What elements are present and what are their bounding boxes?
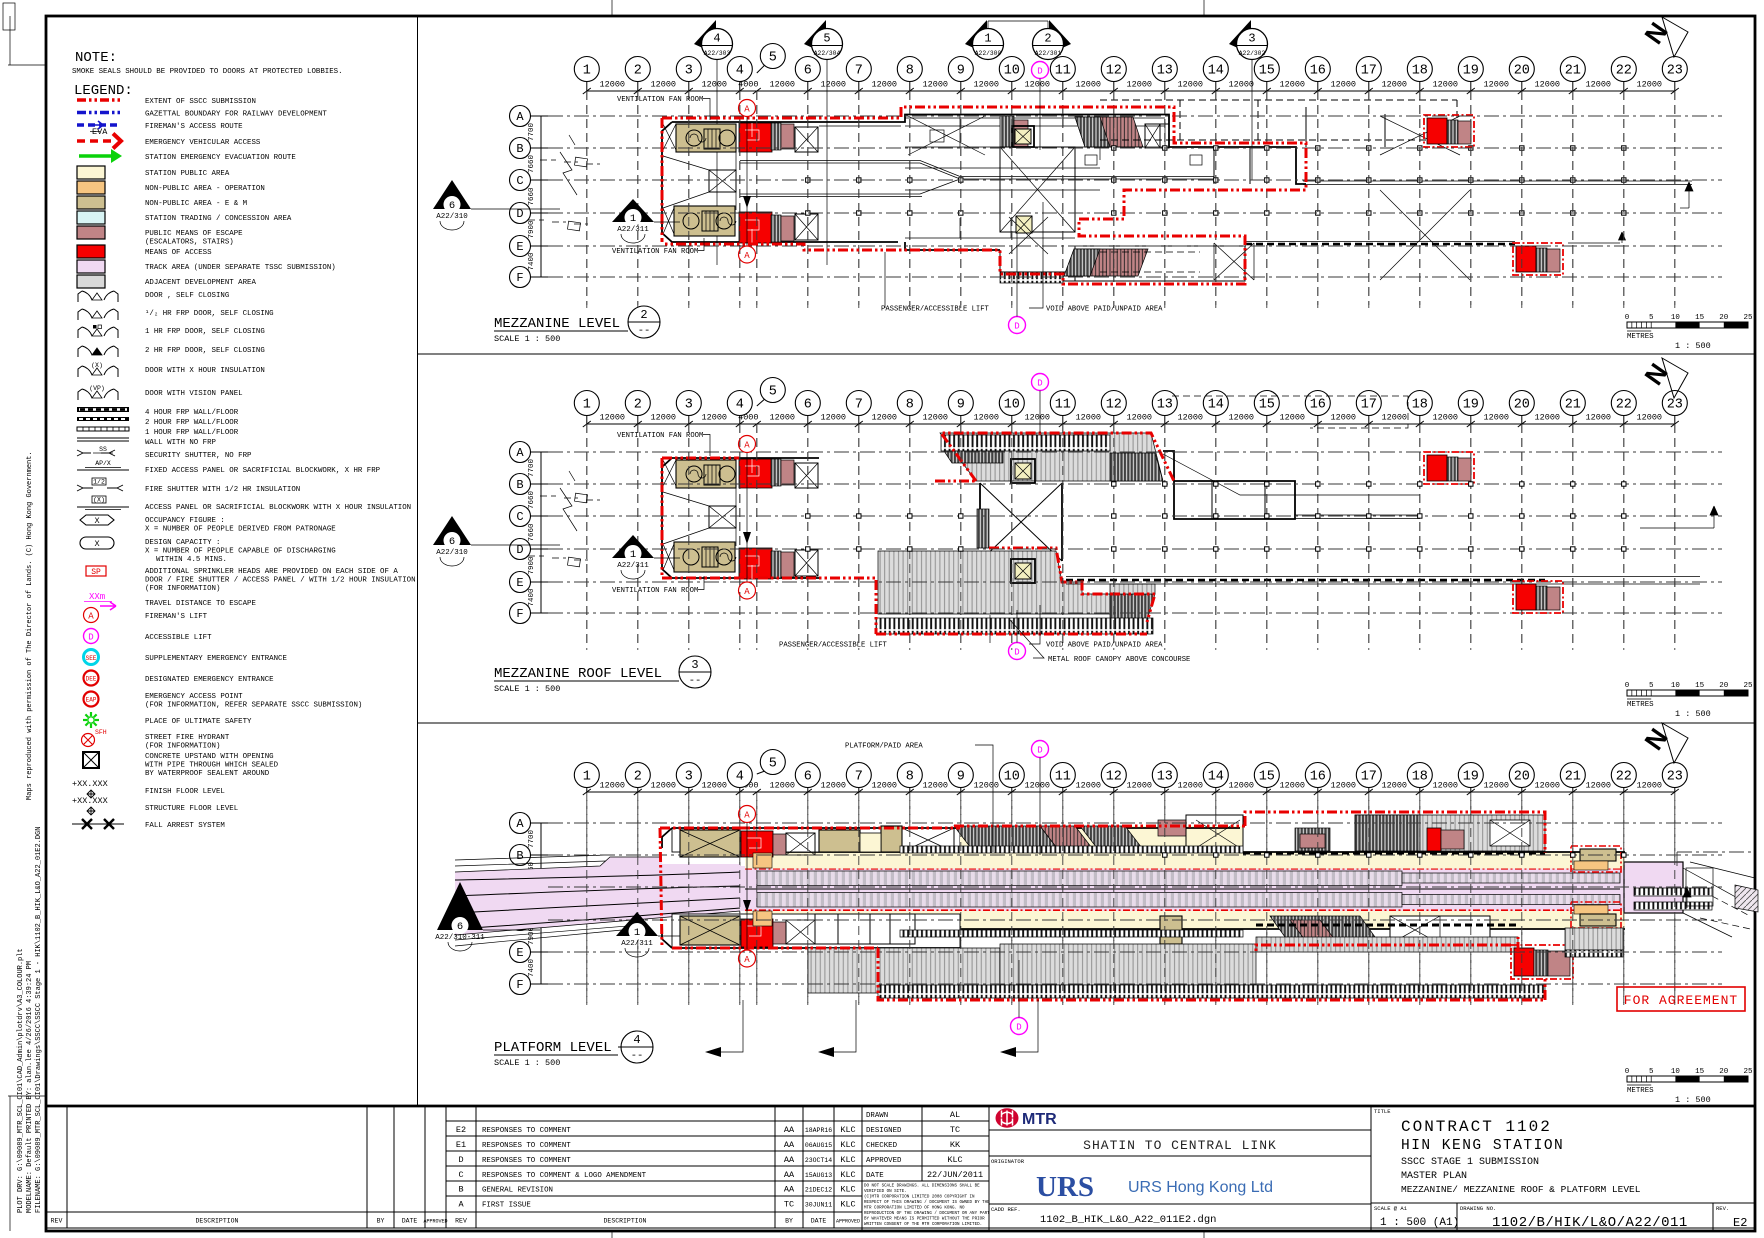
svg-text:15: 15 xyxy=(1695,1068,1705,1076)
svg-text:APPROVED: APPROVED xyxy=(866,1157,902,1165)
svg-text:DEE: DEE xyxy=(86,676,97,683)
svg-text:URS Hong Kong Ltd: URS Hong Kong Ltd xyxy=(1128,1179,1273,1196)
svg-text:12000: 12000 xyxy=(872,781,898,791)
svg-text:KLC: KLC xyxy=(840,1155,855,1165)
svg-text:DRAWN: DRAWN xyxy=(866,1112,888,1120)
svg-text:7400: 7400 xyxy=(528,588,536,607)
svg-text:12000: 12000 xyxy=(1331,781,1357,791)
svg-text:KLC: KLC xyxy=(840,1185,855,1195)
svg-text:3: 3 xyxy=(685,64,693,79)
svg-text:REV: REV xyxy=(51,1218,63,1225)
svg-text:DESCRIPTION: DESCRIPTION xyxy=(196,1218,239,1225)
svg-text:C: C xyxy=(458,1170,463,1180)
svg-text:SP: SP xyxy=(91,568,101,577)
svg-text:12000: 12000 xyxy=(1331,413,1357,423)
svg-text:BY: BY xyxy=(377,1218,385,1225)
svg-text:FIXED ACCESS PANEL OR SACRIFIC: FIXED ACCESS PANEL OR SACRIFICIAL BLOCKW… xyxy=(145,467,381,475)
svg-text:FOR AGREEMENT: FOR AGREEMENT xyxy=(1624,993,1738,1008)
svg-text:20: 20 xyxy=(1514,770,1530,785)
svg-text:17: 17 xyxy=(1361,64,1377,79)
svg-text:16: 16 xyxy=(1310,398,1326,413)
svg-text:1 HOUR FRP WALL/FLOOR: 1 HOUR FRP WALL/FLOOR xyxy=(145,429,239,437)
svg-text:PLACE OF ULTIMATE SAFETY: PLACE OF ULTIMATE SAFETY xyxy=(145,718,252,726)
svg-text:5: 5 xyxy=(769,757,777,772)
svg-text:06AUG15: 06AUG15 xyxy=(805,1142,832,1149)
svg-text:TITLE: TITLE xyxy=(1374,1108,1391,1115)
svg-text:A: A xyxy=(88,612,94,622)
svg-text:AL: AL xyxy=(950,1110,960,1120)
svg-text:METAL ROOF CANOPY ABOVE CONCOU: METAL ROOF CANOPY ABOVE CONCOURSE xyxy=(1048,656,1190,664)
svg-text:KLC: KLC xyxy=(840,1125,855,1135)
svg-text:D: D xyxy=(458,1155,463,1165)
svg-text:A22/311: A22/311 xyxy=(621,940,653,948)
svg-text:18: 18 xyxy=(1412,770,1428,785)
svg-text:RESPONSES TO COMMENT: RESPONSES TO COMMENT xyxy=(482,1127,571,1135)
svg-text:25: 25 xyxy=(1743,314,1753,322)
svg-text:19: 19 xyxy=(1463,64,1479,79)
svg-text:(VP): (VP) xyxy=(89,385,105,392)
svg-text:12000: 12000 xyxy=(1382,781,1408,791)
svg-text:12000: 12000 xyxy=(770,781,796,791)
svg-text:12000: 12000 xyxy=(1382,80,1408,90)
svg-text:SECURITY SHUTTER, NO FRP: SECURITY SHUTTER, NO FRP xyxy=(145,452,252,460)
svg-text:X = NUMBER OF PEOPLE CAPABLE O: X = NUMBER OF PEOPLE CAPABLE OF DISCHARG… xyxy=(145,548,336,556)
svg-text:21: 21 xyxy=(1565,398,1581,413)
svg-text:STATION TRADING / CONCESSION A: STATION TRADING / CONCESSION AREA xyxy=(145,215,292,223)
svg-text:11: 11 xyxy=(1055,64,1071,79)
svg-text:D: D xyxy=(1014,322,1019,332)
svg-text:12000: 12000 xyxy=(1280,80,1306,90)
svg-text:7700: 7700 xyxy=(528,830,536,849)
svg-text:OCCUPANCY FIGURE :: OCCUPANCY FIGURE : xyxy=(145,517,225,525)
svg-text:SHATIN TO CENTRAL LINK: SHATIN TO CENTRAL LINK xyxy=(1083,1138,1277,1153)
svg-text:SS: SS xyxy=(99,446,107,453)
svg-text:E: E xyxy=(516,946,523,960)
svg-text:D: D xyxy=(1037,379,1042,389)
svg-text:7660: 7660 xyxy=(528,187,536,206)
svg-text:(FOR INFORMATION): (FOR INFORMATION) xyxy=(145,585,220,593)
svg-text:STRUCTURE FLOOR LEVEL: STRUCTURE FLOOR LEVEL xyxy=(145,805,238,813)
svg-text:DATE: DATE xyxy=(402,1218,418,1225)
svg-text:--: -- xyxy=(689,675,702,687)
svg-text:A22/304: A22/304 xyxy=(814,50,841,57)
svg-text:A22/300: A22/300 xyxy=(975,50,1002,57)
svg-text:23OCT14: 23OCT14 xyxy=(805,1157,832,1164)
svg-text:4: 4 xyxy=(736,398,744,413)
svg-text:1: 1 xyxy=(583,398,591,413)
svg-text:12000: 12000 xyxy=(821,413,847,423)
svg-text:AA: AA xyxy=(784,1170,795,1180)
svg-text:30JUN11: 30JUN11 xyxy=(805,1202,832,1209)
svg-text:12000: 12000 xyxy=(651,80,677,90)
svg-text:A: A xyxy=(744,105,750,115)
svg-text:8: 8 xyxy=(906,770,914,785)
svg-text:PLATFORM LEVEL: PLATFORM LEVEL xyxy=(494,1040,612,1056)
svg-text:1: 1 xyxy=(630,549,636,561)
svg-text:12000: 12000 xyxy=(1637,781,1663,791)
svg-text:D: D xyxy=(88,633,93,643)
svg-text:12000: 12000 xyxy=(1076,781,1102,791)
svg-text:FIRST ISSUE: FIRST ISSUE xyxy=(482,1202,531,1210)
svg-text:12000: 12000 xyxy=(1178,781,1204,791)
svg-text:12000: 12000 xyxy=(1178,80,1204,90)
svg-text:RESPONSES TO COMMENT: RESPONSES TO COMMENT xyxy=(482,1157,571,1165)
svg-text:12000: 12000 xyxy=(1433,781,1459,791)
svg-text:GAZETTAL BOUNDARY FOR RAILWAY: GAZETTAL BOUNDARY FOR RAILWAY DEVELOPMEN… xyxy=(145,111,327,119)
svg-text:DOOR / FIRE SHUTTER / ACCESS P: DOOR / FIRE SHUTTER / ACCESS PANEL / WIT… xyxy=(145,577,416,585)
svg-text:E2: E2 xyxy=(1733,1216,1747,1230)
svg-text:2: 2 xyxy=(634,64,642,79)
svg-text:12000: 12000 xyxy=(923,413,949,423)
svg-text:METRES: METRES xyxy=(1627,1087,1654,1095)
svg-text:4 HOUR FRP WALL/FLOOR: 4 HOUR FRP WALL/FLOOR xyxy=(145,409,239,417)
svg-text:Maps reproduced with permissio: Maps reproduced with permission of The D… xyxy=(26,451,34,800)
svg-text:14: 14 xyxy=(1208,64,1224,79)
svg-text:DESIGN CAPACITY :: DESIGN CAPACITY : xyxy=(145,539,220,547)
svg-text:9: 9 xyxy=(957,770,965,785)
svg-text:MODELNAME: Default PRIN: MODELNAME: Default PRINTED BY: alan.lee … xyxy=(26,961,34,1213)
svg-text:19: 19 xyxy=(1463,770,1479,785)
svg-text:E: E xyxy=(516,576,523,590)
svg-text:3: 3 xyxy=(1248,32,1255,46)
svg-text:CONCRETE UPSTAND WITH OPENING: CONCRETE UPSTAND WITH OPENING xyxy=(145,753,274,761)
svg-text:23: 23 xyxy=(1667,770,1683,785)
svg-text:22/JUN/2011: 22/JUN/2011 xyxy=(927,1170,983,1180)
svg-text:DOOR WITH VISION PANEL: DOOR WITH VISION PANEL xyxy=(145,390,243,398)
svg-text:E2: E2 xyxy=(456,1125,466,1135)
svg-text:12000: 12000 xyxy=(651,413,677,423)
svg-text:12000: 12000 xyxy=(1535,781,1561,791)
svg-text:18: 18 xyxy=(1412,64,1428,79)
svg-text:B: B xyxy=(516,142,523,156)
svg-text:7400: 7400 xyxy=(528,959,536,978)
svg-text:EVA: EVA xyxy=(92,127,108,137)
svg-text:AA: AA xyxy=(784,1125,795,1135)
svg-text:KLC: KLC xyxy=(840,1140,855,1150)
svg-text:D: D xyxy=(1037,67,1042,77)
svg-text:12000: 12000 xyxy=(923,80,949,90)
svg-text:1/2: 1/2 xyxy=(93,479,105,486)
svg-text:12000: 12000 xyxy=(1382,413,1408,423)
svg-text:DOOR WITH X HOUR INSULATION: DOOR WITH X HOUR INSULATION xyxy=(145,367,265,375)
svg-text:1 : 500: 1 : 500 xyxy=(1675,1095,1711,1105)
svg-text:A22/310: A22/310 xyxy=(436,213,468,221)
svg-text:REV.: REV. xyxy=(1716,1205,1729,1212)
svg-text:D: D xyxy=(1037,746,1042,756)
svg-text:2 HR FRP DOOR, SELF CLOSING: 2 HR FRP DOOR, SELF CLOSING xyxy=(145,347,265,355)
svg-text:12000: 12000 xyxy=(1025,80,1051,90)
svg-text:DESIGNED: DESIGNED xyxy=(866,1127,902,1135)
svg-text:+XX.XXX: +XX.XXX xyxy=(72,796,108,806)
svg-text:12000: 12000 xyxy=(1484,413,1510,423)
svg-text:FALL ARREST SYSTEM: FALL ARREST SYSTEM xyxy=(145,822,225,830)
svg-text:22: 22 xyxy=(1616,64,1632,79)
svg-text:12000: 12000 xyxy=(1127,781,1153,791)
svg-text:VERIFIED ON SITE.: VERIFIED ON SITE. xyxy=(864,1190,907,1194)
svg-text:21: 21 xyxy=(1565,64,1581,79)
svg-text:APPROVED: APPROVED xyxy=(836,1219,860,1225)
svg-text:1102_B_HIK_L&O_A22_011E2.dgn: 1102_B_HIK_L&O_A22_011E2.dgn xyxy=(1040,1214,1216,1226)
svg-text:6: 6 xyxy=(804,64,812,79)
svg-text:1: 1 xyxy=(583,770,591,785)
svg-text:A: A xyxy=(744,441,750,451)
svg-text:BY: BY xyxy=(785,1218,793,1225)
svg-text:STATION PUBLIC AREA: STATION PUBLIC AREA xyxy=(145,170,230,178)
svg-text:18: 18 xyxy=(1412,398,1428,413)
svg-text:1 : 500: 1 : 500 xyxy=(1675,341,1711,351)
svg-text:TC: TC xyxy=(784,1200,794,1210)
svg-text:6: 6 xyxy=(449,200,455,212)
svg-text:METRES: METRES xyxy=(1627,333,1654,341)
svg-text:C: C xyxy=(516,510,523,524)
svg-text:1 HR FRP DOOR, SELF CLOSING: 1 HR FRP DOOR, SELF CLOSING xyxy=(145,328,265,336)
svg-text:12000: 12000 xyxy=(702,80,728,90)
svg-text:DESCRIPTION: DESCRIPTION xyxy=(604,1218,647,1225)
svg-text:9: 9 xyxy=(957,398,965,413)
svg-text:15: 15 xyxy=(1259,64,1275,79)
svg-text:MEANS OF ACCESS: MEANS OF ACCESS xyxy=(145,249,212,257)
svg-text:15: 15 xyxy=(1259,770,1275,785)
svg-text:SCALE @ A1: SCALE @ A1 xyxy=(1374,1205,1408,1212)
svg-text:1 : 500: 1 : 500 xyxy=(1675,709,1711,719)
svg-text:PASSENGER/ACCESSIBLE LIFT: PASSENGER/ACCESSIBLE LIFT xyxy=(881,306,990,314)
svg-text:12000: 12000 xyxy=(702,781,728,791)
svg-text:12000: 12000 xyxy=(1178,413,1204,423)
svg-text:3: 3 xyxy=(685,398,693,413)
svg-text:SSCC STAGE 1 SUBMISSION: SSCC STAGE 1 SUBMISSION xyxy=(1401,1157,1539,1168)
svg-text:ACCESS PANEL OR SACRIFICIAL BL: ACCESS PANEL OR SACRIFICIAL BLOCKWORK WI… xyxy=(145,504,411,512)
svg-text:FIREMAN'S LIFT: FIREMAN'S LIFT xyxy=(145,613,208,621)
svg-text:12000: 12000 xyxy=(1280,781,1306,791)
svg-text:A22/311: A22/311 xyxy=(617,226,649,234)
svg-text:22: 22 xyxy=(1616,770,1632,785)
svg-text:12000: 12000 xyxy=(1127,413,1153,423)
svg-text:VENTILATION FAN ROOM: VENTILATION FAN ROOM xyxy=(617,432,703,440)
svg-text:12000: 12000 xyxy=(1535,413,1561,423)
svg-text:MTR CORPORATION LIMITED OF HON: MTR CORPORATION LIMITED OF HONG KONG. NO xyxy=(864,1207,965,1211)
svg-text:25: 25 xyxy=(1743,682,1753,690)
svg-text:5: 5 xyxy=(769,385,777,400)
svg-text:8: 8 xyxy=(906,398,914,413)
svg-text:MEZZANINE/ MEZZANINE ROOF & PL: MEZZANINE/ MEZZANINE ROOF & PLATFORM LEV… xyxy=(1401,1184,1641,1195)
svg-text:AA: AA xyxy=(784,1155,795,1165)
svg-text:20: 20 xyxy=(1514,398,1530,413)
svg-text:12000: 12000 xyxy=(1127,80,1153,90)
svg-text:6: 6 xyxy=(804,398,812,413)
svg-text:VOID ABOVE PAID/UNPAID AREA: VOID ABOVE PAID/UNPAID AREA xyxy=(1046,306,1163,314)
svg-text:12000: 12000 xyxy=(1484,781,1510,791)
svg-text:19: 19 xyxy=(1463,398,1479,413)
svg-text:20: 20 xyxy=(1719,314,1729,322)
svg-text:--: -- xyxy=(631,1050,644,1062)
svg-text:--: -- xyxy=(638,325,651,337)
svg-text:12000: 12000 xyxy=(1025,413,1051,423)
svg-text:B: B xyxy=(458,1185,463,1195)
svg-text:ACCESSIBLE LIFT: ACCESSIBLE LIFT xyxy=(145,634,212,642)
svg-text:21DEC12: 21DEC12 xyxy=(805,1187,832,1194)
svg-text:9: 9 xyxy=(957,64,965,79)
svg-text:7: 7 xyxy=(855,64,863,79)
svg-text:5: 5 xyxy=(1649,682,1654,690)
svg-text:PLOT DRV: G:\09089_MTR_SCL_: PLOT DRV: G:\09089_MTR_SCL_CI01\CAD_Admi… xyxy=(17,948,25,1213)
svg-text:VENTILATION FAN ROOM: VENTILATION FAN ROOM xyxy=(617,96,703,104)
svg-text:PLATFORM/PAID AREA: PLATFORM/PAID AREA xyxy=(845,743,923,751)
svg-text:7: 7 xyxy=(855,770,863,785)
svg-text:12: 12 xyxy=(1106,770,1122,785)
svg-text:10: 10 xyxy=(1004,770,1020,785)
svg-text:A: A xyxy=(516,446,524,460)
svg-text:A: A xyxy=(516,110,524,124)
svg-text:12: 12 xyxy=(1106,64,1122,79)
svg-text:12000: 12000 xyxy=(923,781,949,791)
svg-text:14: 14 xyxy=(1208,398,1224,413)
svg-text:12000: 12000 xyxy=(651,781,677,791)
svg-text:12000: 12000 xyxy=(1637,413,1663,423)
svg-text:11: 11 xyxy=(1055,770,1071,785)
svg-text:(X): (X) xyxy=(93,497,105,504)
svg-text:(C)MTR CORPORATION LIMITED 200: (C)MTR CORPORATION LIMITED 2008 COPYRIGH… xyxy=(864,1195,975,1200)
svg-text:7400: 7400 xyxy=(528,252,536,271)
svg-text:NON-PUBLIC AREA - E & M: NON-PUBLIC AREA - E & M xyxy=(145,200,247,208)
svg-text:FIRE SHUTTER WITH 1/2 HR INSUL: FIRE SHUTTER WITH 1/2 HR INSULATION xyxy=(145,486,300,494)
svg-text:METRES: METRES xyxy=(1627,701,1654,709)
svg-text:(FOR INFORMATION, REFER SEPARA: (FOR INFORMATION, REFER SEPARATE SSCC SU… xyxy=(145,702,362,710)
svg-text:WALL WITH NO FRP: WALL WITH NO FRP xyxy=(145,439,217,447)
svg-text:21: 21 xyxy=(1565,770,1581,785)
svg-text:CADD REF.: CADD REF. xyxy=(991,1206,1021,1213)
svg-text:15AUG13: 15AUG13 xyxy=(805,1172,832,1179)
svg-text:12000: 12000 xyxy=(1229,413,1255,423)
svg-text:E: E xyxy=(516,240,523,254)
svg-text:12000: 12000 xyxy=(600,80,626,90)
svg-text:AP/X: AP/X xyxy=(95,460,111,467)
svg-text:10: 10 xyxy=(1671,1068,1681,1076)
svg-text:RESPECT OF THIS DRAWING / DOCU: RESPECT OF THIS DRAWING / DOCUMENT IS OW… xyxy=(864,1200,990,1205)
svg-text:KK: KK xyxy=(950,1140,961,1150)
svg-text:8: 8 xyxy=(906,64,914,79)
svg-text:16: 16 xyxy=(1310,64,1326,79)
svg-text:HIN KENG STATION: HIN KENG STATION xyxy=(1401,1138,1564,1154)
svg-text:EMERGENCY ACCESS POINT: EMERGENCY ACCESS POINT xyxy=(145,693,243,701)
svg-text:FINISH FLOOR LEVEL: FINISH FLOOR LEVEL xyxy=(145,788,225,796)
svg-text:15: 15 xyxy=(1259,398,1275,413)
svg-text:1: 1 xyxy=(984,32,991,46)
svg-text:12000: 12000 xyxy=(821,781,847,791)
svg-text:REV: REV xyxy=(455,1218,467,1225)
svg-text:F: F xyxy=(516,607,523,621)
svg-text:7900: 7900 xyxy=(528,220,536,239)
svg-text:12000: 12000 xyxy=(1280,413,1306,423)
svg-text:RESPONSES TO COMMENT: RESPONSES TO COMMENT xyxy=(482,1142,571,1150)
svg-text:2: 2 xyxy=(634,770,642,785)
svg-text:1 : 500 (A1): 1 : 500 (A1) xyxy=(1380,1217,1459,1229)
svg-text:KLC: KLC xyxy=(840,1200,855,1210)
svg-text:SCALE 1 : 500: SCALE 1 : 500 xyxy=(494,334,560,344)
svg-text:12000: 12000 xyxy=(872,80,898,90)
svg-text:12000: 12000 xyxy=(1637,80,1663,90)
svg-text:+XX.XXX: +XX.XXX xyxy=(72,779,108,789)
svg-text:12000: 12000 xyxy=(1586,781,1612,791)
svg-text:CONTRACT 1102: CONTRACT 1102 xyxy=(1401,1118,1552,1136)
svg-text:6: 6 xyxy=(457,921,463,933)
svg-text:DATE: DATE xyxy=(811,1218,827,1225)
svg-text:3: 3 xyxy=(685,770,693,785)
svg-text:12000: 12000 xyxy=(821,80,847,90)
svg-text:4: 4 xyxy=(736,770,744,785)
svg-text:15: 15 xyxy=(1695,682,1705,690)
svg-text:NON-PUBLIC AREA - OPERATION: NON-PUBLIC AREA - OPERATION xyxy=(145,185,265,193)
svg-text:12000: 12000 xyxy=(974,80,1000,90)
svg-text:12000: 12000 xyxy=(1229,80,1255,90)
svg-text:MEZZANINE ROOF LEVEL: MEZZANINE ROOF LEVEL xyxy=(494,666,662,682)
svg-text:22: 22 xyxy=(1616,398,1632,413)
svg-text:17: 17 xyxy=(1361,398,1377,413)
svg-text:DATE: DATE xyxy=(866,1172,884,1180)
svg-text:14: 14 xyxy=(1208,770,1224,785)
svg-text:D: D xyxy=(1016,1023,1021,1033)
svg-text:4: 4 xyxy=(736,64,744,79)
svg-text:20: 20 xyxy=(1719,1068,1729,1076)
svg-text:A: A xyxy=(744,587,750,597)
svg-text:MASTER PLAN: MASTER PLAN xyxy=(1401,1171,1467,1182)
svg-text:F: F xyxy=(516,978,523,992)
svg-text:(FOR INFORMATION): (FOR INFORMATION) xyxy=(145,743,220,751)
svg-text:GENERAL REVISION: GENERAL REVISION xyxy=(482,1187,553,1195)
svg-text:FILENAME: G:\09089_MTR_SCL_: FILENAME: G:\09089_MTR_SCL_CI01\Drawings… xyxy=(35,827,43,1213)
svg-text:12000: 12000 xyxy=(770,80,796,90)
svg-text:A: A xyxy=(744,955,750,965)
svg-text:10: 10 xyxy=(1671,314,1681,322)
svg-text:AA: AA xyxy=(784,1140,795,1150)
svg-text:7660: 7660 xyxy=(528,523,536,542)
svg-text:10: 10 xyxy=(1004,398,1020,413)
svg-text:FIREMAN'S ACCESS ROUTE: FIREMAN'S ACCESS ROUTE xyxy=(145,123,243,131)
svg-text:13: 13 xyxy=(1157,64,1173,79)
svg-text:(X): (X) xyxy=(91,362,103,369)
svg-text:25: 25 xyxy=(1743,1068,1753,1076)
svg-text:DOOR , SELF CLOSING: DOOR , SELF CLOSING xyxy=(145,292,229,300)
svg-text:MEZZANINE LEVEL: MEZZANINE LEVEL xyxy=(494,316,620,332)
svg-text:6: 6 xyxy=(804,770,812,785)
svg-text:7900: 7900 xyxy=(528,927,536,946)
svg-text:DO NOT SCALE DRAWINGS. ALL DIM: DO NOT SCALE DRAWINGS. ALL DIMENSIONS SH… xyxy=(864,1185,980,1189)
svg-text:VENTILATION FAN ROOM: VENTILATION FAN ROOM xyxy=(612,587,698,595)
svg-text:A: A xyxy=(516,817,524,831)
svg-text:12000: 12000 xyxy=(702,413,728,423)
svg-text:WITH PIPE THROUGH WHICH SEALED: WITH PIPE THROUGH WHICH SEALED xyxy=(145,762,279,770)
svg-text:2: 2 xyxy=(640,308,647,322)
svg-text:0: 0 xyxy=(1625,1068,1630,1076)
svg-text:7900: 7900 xyxy=(528,556,536,575)
svg-text:DESIGNATED EMERGENCY ENTRANCE: DESIGNATED EMERGENCY ENTRANCE xyxy=(145,676,274,684)
svg-text:KLC: KLC xyxy=(840,1170,855,1180)
svg-text:CHECKED: CHECKED xyxy=(866,1142,898,1150)
svg-text:B: B xyxy=(516,849,523,863)
svg-text:10: 10 xyxy=(1004,64,1020,79)
svg-text:A22/311: A22/311 xyxy=(617,562,649,570)
svg-text:4: 4 xyxy=(713,32,720,46)
svg-text:SUPPLEMENTARY EMERGENCY ENTRAN: SUPPLEMENTARY EMERGENCY ENTRANCE xyxy=(145,655,287,663)
svg-text:X: X xyxy=(94,539,99,549)
svg-text:12000: 12000 xyxy=(1535,80,1561,90)
svg-text:STREET FIRE HYDRANT: STREET FIRE HYDRANT xyxy=(145,734,230,742)
svg-text:1: 1 xyxy=(630,213,636,225)
svg-text:11: 11 xyxy=(1055,398,1071,413)
svg-text:5: 5 xyxy=(1649,314,1654,322)
svg-text:5: 5 xyxy=(823,32,830,46)
svg-text:A22/303: A22/303 xyxy=(704,50,731,57)
svg-text:7: 7 xyxy=(855,398,863,413)
